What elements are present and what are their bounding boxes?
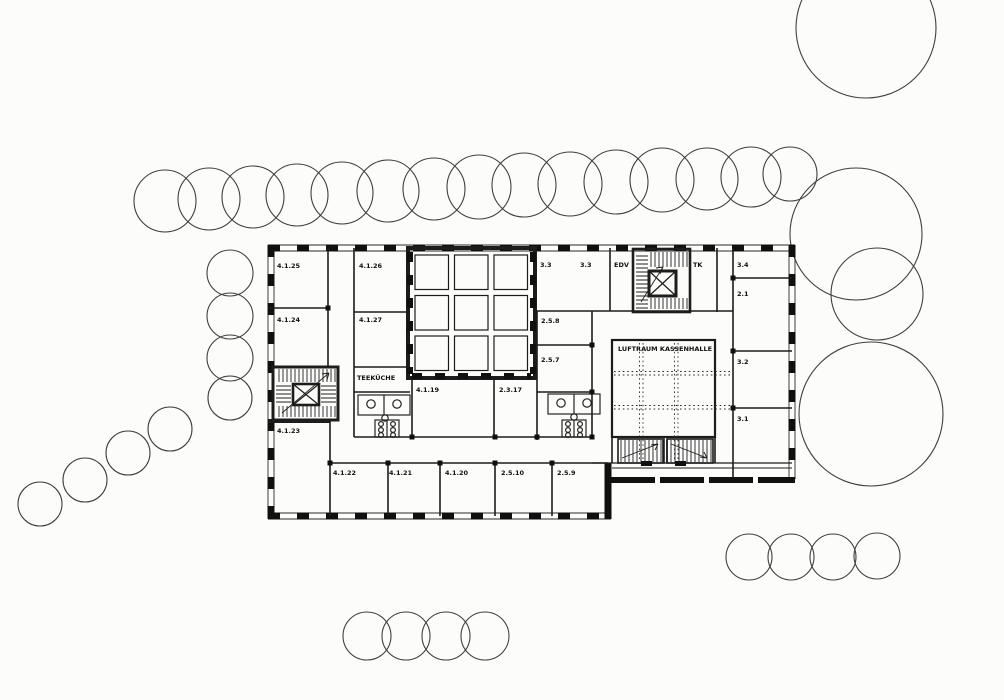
column-marker — [438, 461, 443, 466]
column-marker — [731, 406, 736, 411]
paper-background — [0, 0, 1004, 700]
column-marker — [590, 435, 595, 440]
room-label-4-1-21: 4.1.21 — [389, 469, 413, 477]
column-marker — [386, 461, 391, 466]
column-marker — [493, 435, 498, 440]
column-marker — [550, 461, 555, 466]
column-marker — [328, 461, 333, 466]
room-label-4-1-27: 4.1.27 — [359, 316, 382, 324]
room-label-4-1-23: 4.1.23 — [277, 427, 300, 435]
room-label-4-1-19: 4.1.19 — [416, 386, 440, 394]
column-marker — [590, 390, 595, 395]
room-label-edv: EDV — [614, 261, 629, 269]
room-label-4-1-20: 4.1.20 — [445, 469, 469, 477]
room-label-3-3-a: 3.3 — [540, 261, 552, 269]
room-label-2-5-9: 2.5.9 — [557, 469, 576, 477]
gallery-pier — [641, 461, 652, 466]
room-label-2-5-8: 2.5.8 — [541, 317, 560, 325]
room-label-3-4: 3.4 — [737, 261, 749, 269]
column-marker — [410, 435, 415, 440]
room-label-2-5-7: 2.5.7 — [541, 356, 560, 364]
column-marker — [731, 276, 736, 281]
room-label-tk: TK — [693, 261, 703, 269]
room-label-3-2: 3.2 — [737, 358, 749, 366]
room-label-2-5-10: 2.5.10 — [501, 469, 525, 477]
column-marker — [326, 306, 331, 311]
room-label-3-1: 3.1 — [737, 415, 749, 423]
site-plan-svg: 4.1.25 4.1.26 4.1.24 4.1.27 TEEKÜCHE 4.1… — [0, 0, 1004, 700]
room-label-4-1-26: 4.1.26 — [359, 262, 383, 270]
room-label-4-1-24: 4.1.24 — [277, 316, 301, 324]
room-label-4-1-22: 4.1.22 — [333, 469, 356, 477]
room-label-3-3-b: 3.3 — [580, 261, 592, 269]
column-marker — [535, 435, 540, 440]
column-marker — [493, 461, 498, 466]
column-marker — [731, 349, 736, 354]
floor-plan-scan: 4.1.25 4.1.26 4.1.24 4.1.27 TEEKÜCHE 4.1… — [0, 0, 1004, 700]
gallery-pier — [675, 461, 686, 466]
room-label-2-1: 2.1 — [737, 290, 749, 298]
room-label-4-1-25: 4.1.25 — [277, 262, 301, 270]
room-label-luftraum-kassenhalle: LUFTRAUM KASSENHALLE — [618, 345, 712, 353]
column-marker — [590, 343, 595, 348]
room-label-teekueche: TEEKÜCHE — [357, 373, 395, 382]
room-label-2-3-17: 2.3.17 — [499, 386, 522, 394]
